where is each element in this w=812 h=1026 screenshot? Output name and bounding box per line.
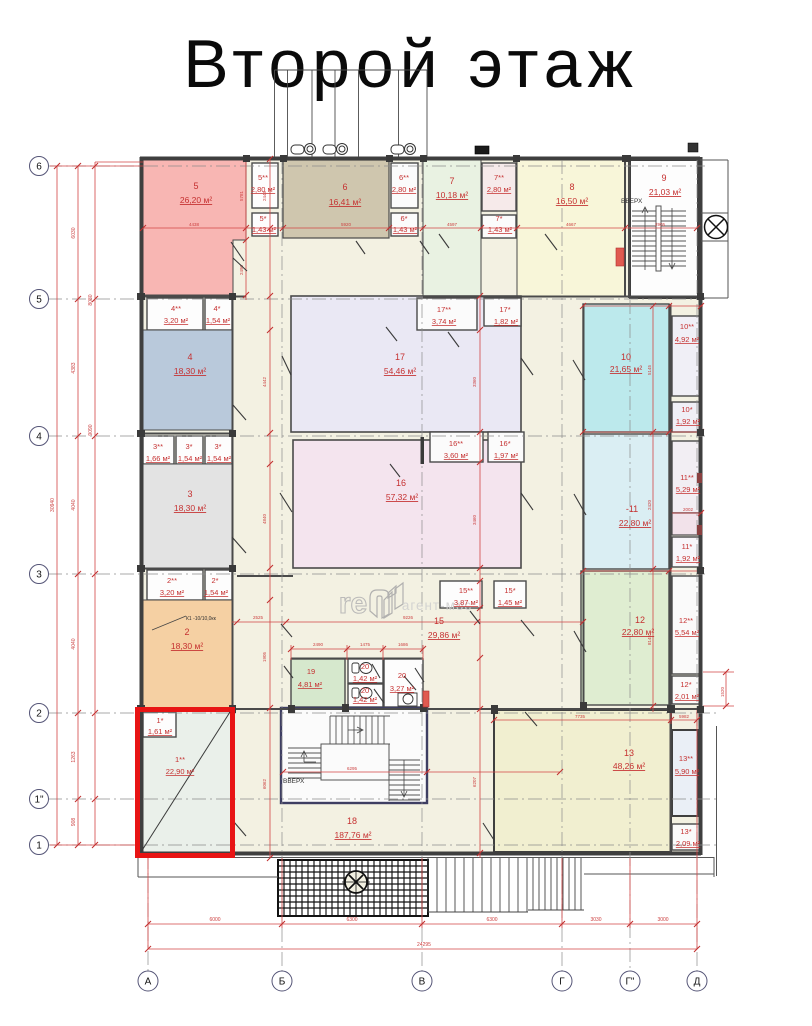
- svg-text:10: 10: [621, 352, 631, 362]
- svg-text:1,54 м²: 1,54 м²: [207, 454, 232, 463]
- svg-text:1,66 м²: 1,66 м²: [146, 454, 171, 463]
- svg-text:12: 12: [635, 615, 645, 625]
- svg-text:1,82 м²: 1,82 м²: [494, 317, 519, 326]
- svg-text:2490: 2490: [313, 642, 324, 647]
- svg-text:4442: 4442: [262, 376, 267, 387]
- svg-text:8080: 8080: [88, 294, 94, 305]
- svg-text:К1 -10/10,0кк: К1 -10/10,0кк: [186, 616, 217, 622]
- svg-text:3030: 3030: [590, 917, 601, 923]
- svg-text:6207: 6207: [472, 776, 477, 787]
- svg-text:3,74 м²: 3,74 м²: [432, 317, 457, 326]
- svg-text:3360: 3360: [472, 376, 477, 387]
- svg-text:Г: Г: [559, 977, 565, 988]
- svg-text:1": 1": [34, 795, 44, 806]
- svg-text:5*: 5*: [259, 214, 266, 223]
- svg-text:6030: 6030: [71, 227, 77, 238]
- svg-text:20: 20: [361, 662, 369, 671]
- svg-text:18,30 м²: 18,30 м²: [174, 503, 206, 513]
- svg-text:1: 1: [36, 841, 42, 852]
- svg-text:ВВЕРХ: ВВЕРХ: [283, 778, 305, 785]
- svg-text:5,29 м²: 5,29 м²: [676, 485, 701, 494]
- svg-text:1,54 м²: 1,54 м²: [204, 588, 229, 597]
- svg-text:12**: 12**: [679, 616, 693, 625]
- svg-text:ВВЕРХ: ВВЕРХ: [621, 198, 643, 205]
- svg-text:9226: 9226: [403, 615, 414, 620]
- svg-text:5982: 5982: [679, 714, 690, 719]
- svg-text:18: 18: [347, 816, 357, 826]
- svg-text:3,27 м²: 3,27 м²: [390, 684, 415, 693]
- svg-text:6295: 6295: [347, 766, 358, 771]
- svg-text:4383: 4383: [71, 362, 77, 373]
- svg-text:22,80 м²: 22,80 м²: [622, 627, 654, 637]
- svg-text:16,50 м²: 16,50 м²: [556, 196, 588, 206]
- svg-text:2: 2: [36, 709, 42, 720]
- svg-text:29,86 м²: 29,86 м²: [428, 630, 460, 640]
- svg-text:4,81 м²: 4,81 м²: [298, 680, 323, 689]
- svg-text:10*: 10*: [681, 405, 692, 414]
- svg-text:7: 7: [449, 176, 454, 186]
- svg-text:5,54 м²: 5,54 м²: [675, 628, 700, 637]
- svg-text:6: 6: [342, 182, 347, 192]
- svg-text:re: re: [339, 587, 367, 620]
- svg-text:3460: 3460: [472, 514, 477, 525]
- svg-text:15**: 15**: [459, 586, 473, 595]
- svg-text:3000: 3000: [657, 917, 668, 923]
- svg-text:Г": Г": [626, 977, 635, 988]
- svg-text:16,41 м²: 16,41 м²: [329, 197, 361, 207]
- svg-text:18,30 м²: 18,30 м²: [174, 366, 206, 376]
- svg-text:9090: 9090: [88, 424, 94, 435]
- svg-text:Д: Д: [694, 977, 701, 988]
- svg-text:5**: 5**: [258, 173, 268, 182]
- svg-text:1,92 м²: 1,92 м²: [676, 417, 701, 426]
- svg-text:6*: 6*: [400, 214, 407, 223]
- svg-text:-11: -11: [626, 504, 638, 514]
- svg-text:7735: 7735: [575, 714, 586, 719]
- svg-text:3*: 3*: [185, 442, 192, 451]
- svg-text:В: В: [419, 977, 426, 988]
- svg-text:12*: 12*: [680, 680, 691, 689]
- svg-text:2,80 м²: 2,80 м²: [487, 185, 512, 194]
- svg-text:16**: 16**: [449, 439, 463, 448]
- svg-text:16: 16: [396, 478, 406, 488]
- svg-text:1,43 м²: 1,43 м²: [488, 225, 513, 234]
- svg-text:3**: 3**: [153, 442, 163, 451]
- svg-text:11*: 11*: [682, 542, 693, 551]
- svg-text:1686: 1686: [398, 642, 409, 647]
- svg-text:1*: 1*: [156, 716, 163, 725]
- svg-text:20: 20: [361, 686, 369, 695]
- svg-text:2,80 м²: 2,80 м²: [392, 185, 417, 194]
- svg-text:10**: 10**: [680, 322, 694, 331]
- svg-text:6300: 6300: [486, 917, 497, 923]
- svg-text:13**: 13**: [679, 754, 693, 763]
- svg-text:Б: Б: [279, 977, 286, 988]
- svg-text:4438: 4438: [189, 222, 200, 227]
- svg-text:8: 8: [569, 182, 574, 192]
- svg-text:4597: 4597: [447, 222, 458, 227]
- svg-text:1,61 м²: 1,61 м²: [148, 727, 173, 736]
- svg-text:3: 3: [187, 489, 192, 499]
- svg-text:3,20 м²: 3,20 м²: [164, 316, 189, 325]
- svg-text:4840: 4840: [262, 513, 267, 524]
- svg-text:1**: 1**: [175, 755, 185, 764]
- svg-text:13: 13: [624, 748, 634, 758]
- svg-text:7*: 7*: [495, 214, 502, 223]
- svg-text:6**: 6**: [399, 173, 409, 182]
- svg-text:5,90 м²: 5,90 м²: [675, 767, 700, 776]
- svg-text:4*: 4*: [213, 304, 220, 313]
- svg-text:4,92 м²: 4,92 м²: [675, 335, 700, 344]
- svg-text:17*: 17*: [499, 305, 510, 314]
- svg-text:2**: 2**: [167, 576, 177, 585]
- svg-text:2: 2: [184, 627, 189, 637]
- svg-text:2,09 м²: 2,09 м²: [676, 839, 701, 848]
- svg-text:3,60 м²: 3,60 м²: [444, 451, 469, 460]
- svg-text:908: 908: [71, 818, 77, 827]
- svg-text:21,03 м²: 21,03 м²: [649, 187, 681, 197]
- svg-text:2,01 м²: 2,01 м²: [675, 692, 700, 701]
- svg-text:2,80 м²: 2,80 м²: [251, 185, 276, 194]
- svg-text:6: 6: [36, 162, 42, 173]
- svg-text:17: 17: [395, 352, 405, 362]
- svg-text:22,90 м²: 22,90 м²: [166, 767, 195, 776]
- svg-text:Второй этаж: Второй этаж: [183, 26, 639, 102]
- svg-text:5: 5: [36, 295, 42, 306]
- svg-text:13*: 13*: [680, 827, 691, 836]
- svg-text:15: 15: [434, 616, 444, 626]
- svg-text:3,20 м²: 3,20 м²: [160, 588, 185, 597]
- svg-text:2420: 2420: [647, 499, 652, 510]
- svg-text:57,32 м²: 57,32 м²: [386, 492, 418, 502]
- svg-text:4040: 4040: [71, 638, 77, 649]
- svg-text:3*: 3*: [214, 442, 221, 451]
- svg-text:4: 4: [187, 352, 192, 362]
- svg-text:26,20 м²: 26,20 м²: [180, 195, 212, 205]
- svg-text:4**: 4**: [171, 304, 181, 313]
- svg-text:20: 20: [398, 671, 406, 680]
- svg-text:5781: 5781: [239, 190, 244, 201]
- svg-text:3,87 м²: 3,87 м²: [454, 598, 479, 607]
- svg-text:3: 3: [36, 570, 42, 581]
- svg-text:21,65 м²: 21,65 м²: [610, 364, 642, 374]
- svg-text:15*: 15*: [504, 586, 515, 595]
- svg-text:1,54 м²: 1,54 м²: [178, 454, 203, 463]
- svg-text:1,43 м²: 1,43 м²: [393, 225, 418, 234]
- svg-text:1,45 м²: 1,45 м²: [498, 598, 523, 607]
- svg-text:1,97 м²: 1,97 м²: [494, 451, 519, 460]
- svg-text:54,46 м²: 54,46 м²: [384, 366, 416, 376]
- svg-text:1,54 м²: 1,54 м²: [206, 316, 231, 325]
- svg-text:11**: 11**: [680, 473, 694, 482]
- svg-text:6300: 6300: [346, 917, 357, 923]
- svg-text:9: 9: [661, 173, 666, 183]
- svg-text:4040: 4040: [71, 499, 77, 510]
- svg-text:1,42 м²: 1,42 м²: [353, 695, 378, 704]
- svg-text:2002: 2002: [683, 507, 694, 512]
- svg-text:6000: 6000: [209, 917, 220, 923]
- svg-text:1,92 м²: 1,92 м²: [676, 554, 701, 563]
- svg-text:4: 4: [36, 432, 42, 443]
- svg-text:1905: 1905: [262, 651, 267, 662]
- svg-text:5145: 5145: [647, 364, 652, 375]
- svg-text:1,43 м²: 1,43 м²: [252, 225, 277, 234]
- svg-text:1,42 м²: 1,42 м²: [353, 674, 378, 683]
- svg-text:18,30 м²: 18,30 м²: [171, 641, 203, 651]
- svg-text:48,26 м²: 48,26 м²: [613, 761, 645, 771]
- svg-text:5920: 5920: [341, 222, 352, 227]
- svg-text:19: 19: [307, 667, 315, 676]
- svg-text:1475: 1475: [360, 642, 371, 647]
- svg-text:7**: 7**: [494, 173, 504, 182]
- svg-text:187,76 м²: 187,76 м²: [334, 830, 371, 840]
- svg-text:А: А: [145, 977, 152, 988]
- svg-text:5: 5: [193, 181, 198, 191]
- svg-text:17**: 17**: [437, 305, 451, 314]
- svg-text:30940: 30940: [50, 498, 56, 512]
- svg-text:2525: 2525: [253, 615, 264, 620]
- svg-text:16*: 16*: [499, 439, 510, 448]
- svg-text:2905: 2905: [655, 222, 666, 227]
- svg-text:1263: 1263: [71, 751, 77, 762]
- svg-text:22,80 м²: 22,80 м²: [619, 518, 651, 528]
- svg-text:1520: 1520: [720, 686, 725, 697]
- svg-text:6062: 6062: [262, 778, 267, 789]
- svg-text:4667: 4667: [566, 222, 577, 227]
- svg-text:2*: 2*: [211, 576, 218, 585]
- svg-text:24295: 24295: [417, 942, 431, 948]
- svg-text:10,18 м²: 10,18 м²: [436, 190, 468, 200]
